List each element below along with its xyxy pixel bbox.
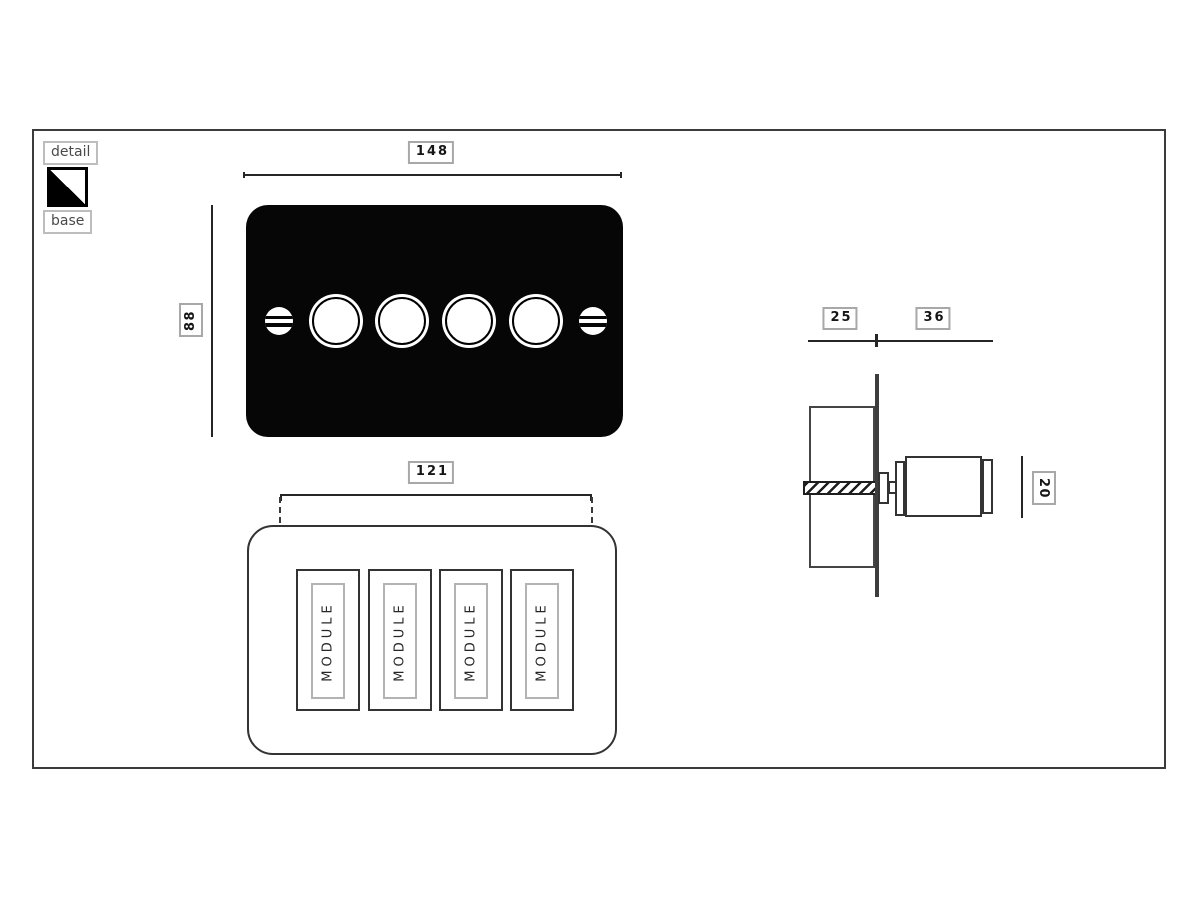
module-inner-2: MODULE <box>383 583 417 699</box>
module-block-3: MODULE <box>439 569 503 711</box>
dim-height-88-line <box>211 205 213 437</box>
dimmer-knob-3 <box>442 294 496 348</box>
module-label-2: MODULE <box>393 601 408 681</box>
dim-depth-36-label: 36 <box>915 307 950 330</box>
rear-plate: MODULE MODULE MODULE MODULE <box>247 525 617 755</box>
dim-diameter-20-line <box>1021 456 1023 518</box>
dim-depth-25-label: 25 <box>822 307 857 330</box>
module-label-1: MODULE <box>321 601 336 681</box>
legend-detail-label: detail <box>43 141 98 165</box>
dim-depth-center-tick <box>875 334 878 347</box>
threaded-shaft <box>803 481 877 495</box>
dim-width-148-label: 148 <box>408 141 454 164</box>
module-block-1: MODULE <box>296 569 360 711</box>
module-inner-4: MODULE <box>525 583 559 699</box>
dim-height-88-label: 88 <box>179 303 203 337</box>
dim-width-121-label: 121 <box>408 461 454 484</box>
knob-base-ring <box>895 461 905 516</box>
module-inner-3: MODULE <box>454 583 488 699</box>
module-label-4: MODULE <box>535 601 550 681</box>
dim-width-121-line <box>280 494 592 496</box>
knob-body <box>905 456 982 517</box>
front-plate <box>246 205 623 437</box>
dim-depth-line <box>808 340 993 342</box>
module-inner-1: MODULE <box>311 583 345 699</box>
legend-base-label: base <box>43 210 92 234</box>
screw-cap-left-icon <box>265 307 293 335</box>
dim-width-148-line <box>243 174 622 176</box>
finish-swatch <box>47 167 88 207</box>
module-block-4: MODULE <box>510 569 574 711</box>
spec-sheet: detail base 148 88 121 MODULE MODULE <box>0 0 1200 900</box>
dim-diameter-20-text: 20 <box>1037 477 1052 498</box>
dimmer-knob-2 <box>375 294 429 348</box>
dimmer-knob-1 <box>309 294 363 348</box>
module-label-3: MODULE <box>464 601 479 681</box>
knob-end-cap <box>982 459 993 514</box>
dimmer-knob-4 <box>509 294 563 348</box>
dim-height-88-text: 88 <box>184 309 199 330</box>
screw-cap-right-icon <box>579 307 607 335</box>
dim-diameter-20-label: 20 <box>1032 471 1056 505</box>
module-block-2: MODULE <box>368 569 432 711</box>
